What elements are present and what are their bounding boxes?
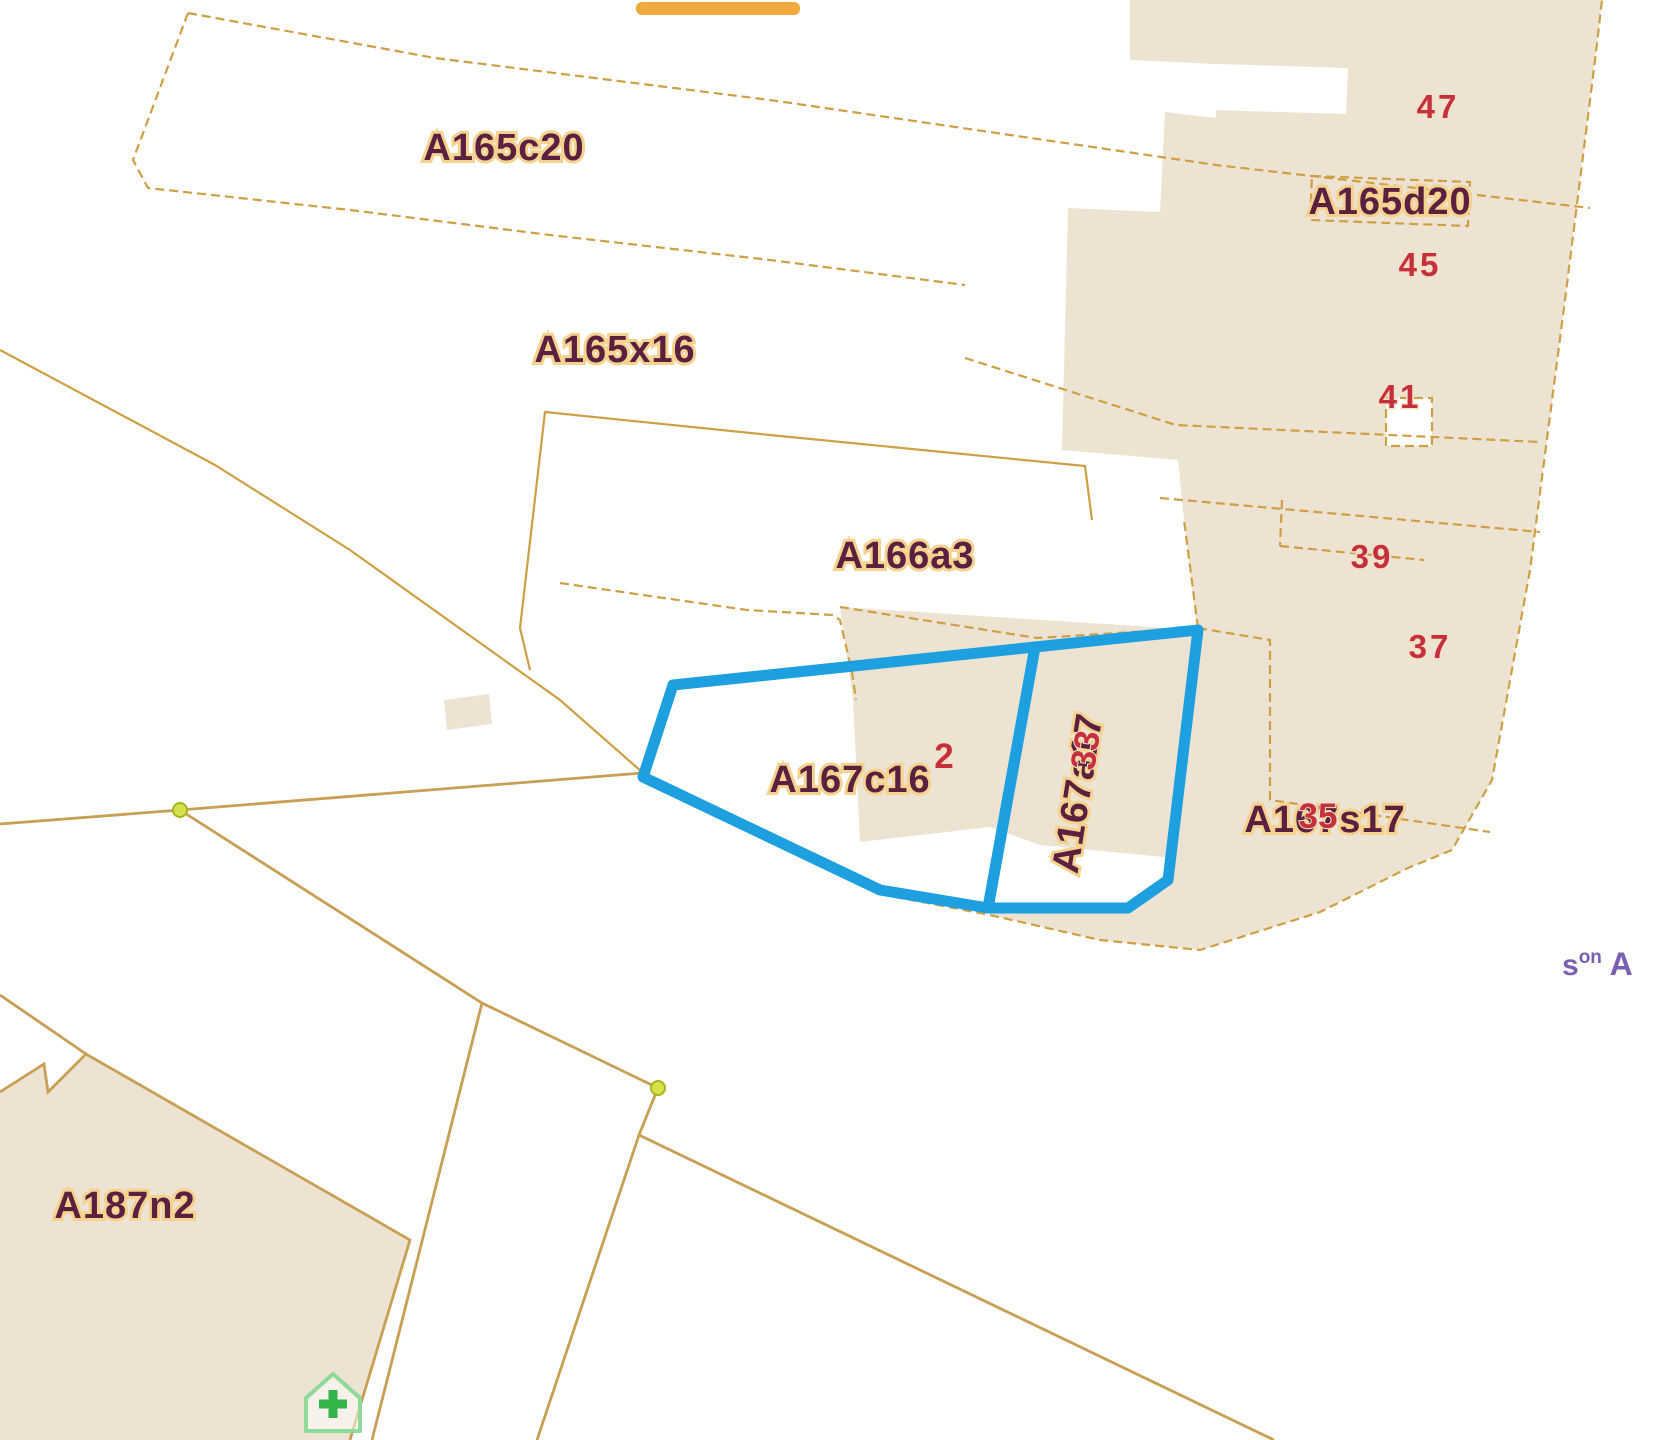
section-note-superscript: on — [1579, 947, 1602, 968]
small-building-footprint[interactable] — [444, 694, 492, 730]
parcel-label-a187n2: A187n2 — [54, 1185, 195, 1227]
parcel-boundary — [372, 1003, 482, 1440]
parcel-label-a165c20: A165c20 — [423, 127, 584, 169]
parcel-boundary — [639, 1135, 1274, 1440]
parcel-label-a166a3: A166a3 — [835, 535, 974, 577]
parcel-label-a165x16: A165x16 — [534, 329, 695, 371]
parcel-boundary — [180, 810, 658, 1088]
house-number-37: 37 — [1409, 628, 1452, 665]
survey-vertex-dot — [651, 1081, 665, 1095]
house-number-2: 2 — [934, 737, 953, 776]
section-note-prefix: s — [1562, 949, 1579, 982]
house-number-45: 45 — [1399, 246, 1442, 283]
highlighted-road-fragment — [636, 2, 800, 15]
cadastral-map-viewport: A165c20 A165x16 A166a3 A167c16 A165d20 A… — [0, 0, 1674, 1440]
section-note-suffix: A — [1602, 946, 1633, 982]
parcel-label-a167c16: A167c16 — [769, 759, 930, 801]
parcel-label-a165d20: A165d20 — [1308, 181, 1471, 223]
house-number-33: 33 — [1063, 728, 1108, 773]
section-note: son A — [1562, 946, 1633, 982]
courtyard-notch — [1214, 64, 1348, 114]
cadastral-map-canvas: A165c20 A165x16 A166a3 A167c16 A165d20 A… — [0, 0, 1674, 1440]
house-number-39: 39 — [1351, 538, 1394, 575]
parcel-boundary — [0, 773, 642, 824]
parcel-boundary — [0, 995, 86, 1054]
house-number-35: 35 — [1299, 797, 1338, 836]
house-number-41: 41 — [1379, 378, 1422, 415]
survey-vertex-dot — [173, 803, 187, 817]
parcel-boundary — [537, 1088, 658, 1440]
house-number-47: 47 — [1417, 88, 1460, 125]
parcel-block-a187n2[interactable] — [0, 1054, 410, 1440]
